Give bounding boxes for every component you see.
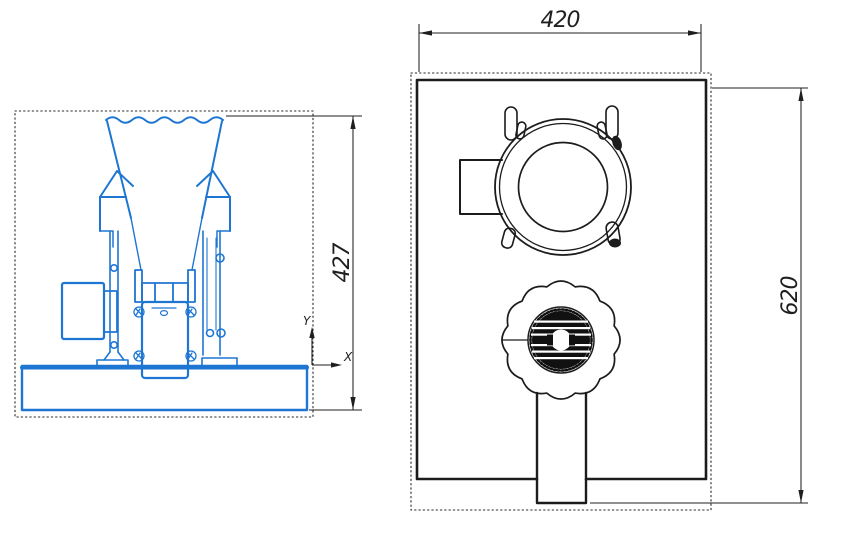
axis-x-label: X — [343, 350, 353, 364]
hopper-cover — [100, 171, 230, 247]
axis-y-arrow — [309, 327, 314, 338]
hopper-break-line — [106, 117, 223, 123]
gear-disc — [531, 310, 592, 371]
hopper — [106, 117, 223, 270]
axis-y-label: Y — [303, 314, 312, 328]
die-knob — [502, 281, 620, 399]
drawing-canvas: Y X 427 — [0, 0, 843, 538]
top-width-value: 420 — [541, 8, 580, 33]
front-bounding-box — [15, 111, 313, 417]
top-plate — [417, 80, 706, 479]
front-height-value: 427 — [330, 243, 355, 283]
engineering-drawing: Y X 427 — [0, 0, 843, 538]
base-plate — [22, 366, 307, 410]
tie-rod-right — [202, 231, 237, 366]
top-depth-value: 620 — [778, 277, 803, 316]
dim-top-width: 420 — [419, 8, 701, 72]
front-view — [15, 111, 313, 417]
axis-x-arrow — [331, 362, 342, 367]
motor — [62, 283, 117, 339]
discharge-chute — [537, 393, 586, 503]
top-view — [411, 73, 711, 510]
dim-top-depth: 620 — [590, 88, 808, 503]
top-bounding-box — [411, 73, 711, 510]
press-header — [135, 270, 195, 302]
flange-ring — [495, 106, 631, 255]
coordinate-axes: Y X — [303, 314, 353, 368]
tie-rod-left — [97, 231, 128, 366]
